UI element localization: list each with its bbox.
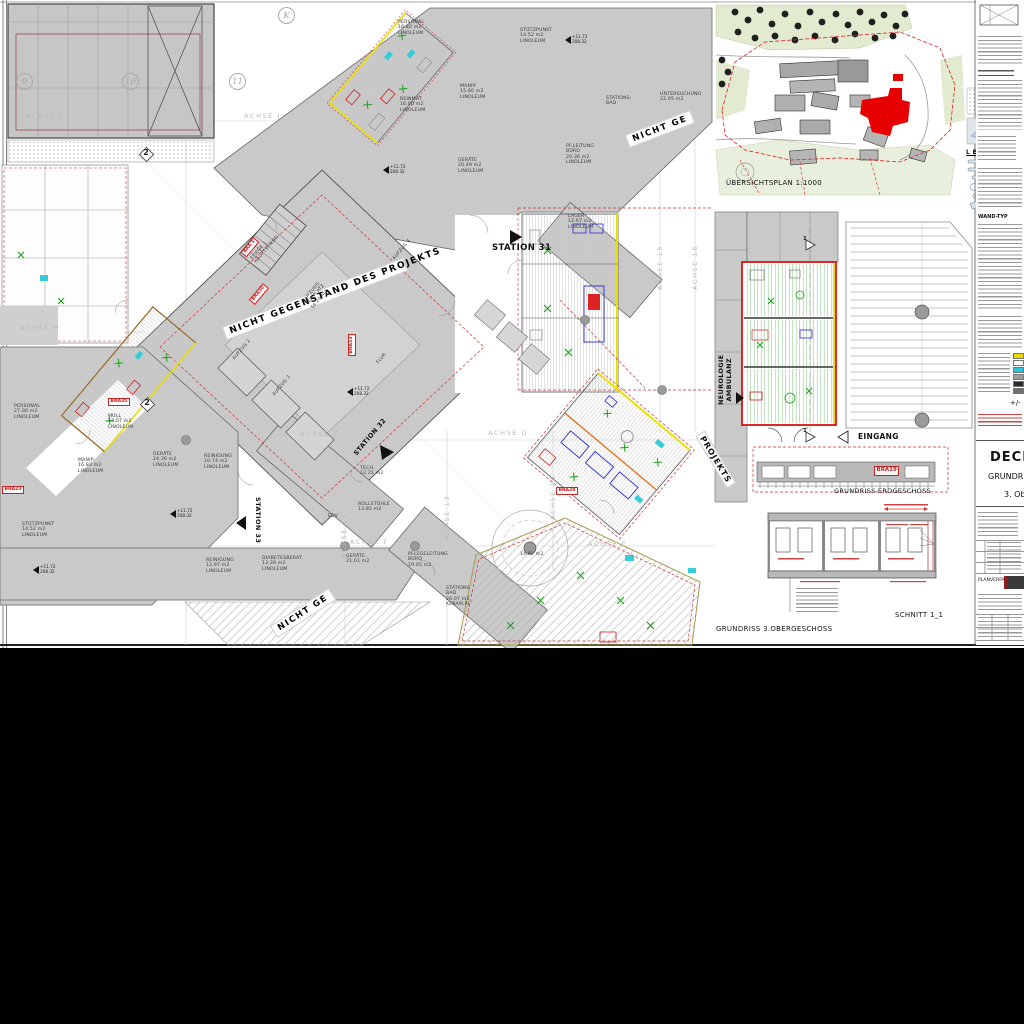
- section-marker-number: 1: [803, 236, 807, 242]
- wall-type-lines: [978, 224, 1022, 310]
- elevation-marker: +11.72 208.32: [347, 386, 370, 396]
- site-plan-caption: ÜBERSICHTSPLAN 1:1000: [726, 179, 822, 187]
- room-label: STATIONS- BAD: [606, 96, 632, 107]
- section-drawing: [768, 504, 936, 612]
- section-marker-number: 1: [803, 428, 807, 434]
- room-label: STATIONS BAD 26.07 m2 KERAM.PL: [446, 586, 470, 607]
- divider: [976, 440, 1024, 441]
- room-label: ROLLSTÜHLE 13.85 m2: [358, 502, 390, 513]
- sheet-title-fragment: GRUNDRIS: [988, 472, 1024, 481]
- room-label: REINIGUNG 10.74 m2 LINOLEUM: [204, 454, 232, 470]
- room-label: PERSONAL 27.06 m2 LINOLEUM: [14, 404, 40, 420]
- project-info-lines: [978, 512, 1018, 536]
- notes-lines: [978, 70, 1014, 76]
- legend-swatch: [1013, 367, 1024, 373]
- section-caption: SCHNITT 1_1: [895, 611, 943, 619]
- entrance-label: EINGANG: [858, 432, 899, 441]
- legend-lines: [978, 353, 1010, 393]
- department-label: NEUROLOGIE AMBULANZ: [718, 338, 734, 422]
- divider: [976, 506, 1024, 507]
- legend-swatch: [1013, 353, 1024, 359]
- grid-bubble-9: 9: [16, 73, 33, 90]
- plan-geometry: [0, 0, 1024, 648]
- plusminus-symbol: +/-: [1010, 399, 1021, 407]
- room-label: UNTERSUCHUNG 22.05 m2: [660, 92, 701, 103]
- titleblock-diagram: [976, 0, 1024, 30]
- grid-bubble-k: K: [278, 7, 295, 24]
- bra-tag: BRA35: [108, 398, 130, 406]
- legend-swatch: [1013, 381, 1024, 387]
- axis-g-label: ACHSE G: [300, 430, 340, 438]
- axis-j-label: ACHSE J: [244, 112, 281, 120]
- notes-lines: [978, 316, 1022, 348]
- canvas-black-area: [0, 648, 1024, 1024]
- grid-bubble-11: 11: [229, 73, 246, 90]
- elevation-marker: +11.72 208.32: [33, 564, 56, 574]
- notes-lines: [978, 136, 1016, 162]
- notes-lines: [978, 168, 1022, 210]
- renovation-column: [518, 208, 712, 392]
- legend-swatch: [1013, 374, 1024, 380]
- axis-14-label: ACHSE 14: [549, 475, 557, 520]
- station-33-label: STATION 33: [254, 497, 262, 543]
- sheet-title-fragment: DECKE: [990, 450, 1024, 465]
- notes-lines: [978, 36, 1022, 64]
- planner-lines: [978, 594, 1022, 610]
- bra-tag: BRA23: [2, 486, 24, 494]
- room-label: GERÄTE 21.61 m2: [346, 554, 370, 565]
- detail-plan-caption: GRUNDRISS ERDGESCHOSS: [834, 487, 931, 495]
- revision-lines: [987, 542, 1021, 572]
- room-label: GERÄTE 24.36 m2 LINOLEUM: [153, 452, 178, 468]
- room-label: REINIGUNG 12.97 m2 LINOLEUM: [206, 558, 234, 574]
- bra-tag: BRA13: [348, 334, 356, 356]
- station-31-label: STATION 31: [492, 243, 551, 253]
- renovation-wedge: [458, 518, 700, 645]
- title-block: WAND-TYP +/- DECKE GRUNDRIS 3. Ob PLANVE…: [976, 0, 1024, 645]
- red-note-lines: [978, 414, 1022, 428]
- axis-j-label: ACHSE J: [26, 112, 63, 120]
- room-label: GERÄTE 20.49 m2 LINOLEUM: [458, 158, 483, 174]
- grid-diamond-2: 2: [140, 397, 154, 411]
- axis-f-label: ACHSE F: [350, 538, 389, 546]
- axis-13-label: ACHSE 13: [443, 495, 451, 540]
- floor3-plan-caption: GRUNDRISS 3.OBERGESCHOSS: [716, 625, 832, 633]
- room-label: PERSONAL 16.82 m2 LINOLEUM: [398, 20, 424, 36]
- room-label: DIABETESBERAT. 13.39 m2 LINOLEUM: [262, 556, 303, 572]
- section-annotation-lines: [796, 588, 838, 614]
- wall-type-heading: WAND-TYP: [978, 214, 1008, 220]
- elevation-marker: +11.72 208.32: [383, 164, 406, 174]
- room-label: PFLEGELEITUNG BÜRO 19.05 m2: [408, 552, 448, 568]
- room-label: STÜTZPUNKT 14.52 m2 LINOLEUM: [520, 28, 552, 44]
- axis-e-label: ACHSE E: [588, 540, 627, 548]
- axis-g-label: ACHSE G: [488, 429, 528, 437]
- axis-h-label: ACHSE H: [20, 324, 60, 332]
- grid-bubble-10: 10: [122, 73, 139, 90]
- room-label: PF.LEITUNG BÜRO 20.36 m2 LINOLEUM: [566, 144, 594, 165]
- bra-tag: BRA19: [874, 466, 899, 476]
- room-label: MANIP. 15.66 m2 LINOLEUM: [460, 84, 485, 100]
- bra-tag: BRA28: [556, 487, 578, 495]
- notes-lines: [978, 80, 1022, 130]
- room-label: MANIP 16.83 m2 LINOLEUM: [78, 458, 103, 474]
- room-label: REINMAT. 16.00 m2 LINOLEUM: [400, 97, 425, 113]
- elevation-marker: +11.72 208.32: [565, 34, 588, 44]
- room-label: 14.82 m2: [520, 552, 544, 557]
- hall-structure: [8, 4, 214, 162]
- detail-plan: [715, 212, 972, 502]
- elevation-marker: +11.72 208.32: [170, 508, 193, 518]
- left-rooms: [0, 165, 128, 345]
- axis-16-label: ACHSE 16: [691, 245, 699, 290]
- sheet-title-fragment: 3. Ob: [1004, 490, 1024, 499]
- legend-swatch: [1013, 360, 1024, 366]
- axis-12-label: ACHSE 12: [340, 513, 348, 558]
- room-label: EDV: [328, 514, 338, 519]
- room-label: MÜLL 13.07 m2 LINOLEUM: [108, 414, 133, 430]
- legend-swatch: [1013, 388, 1024, 394]
- room-label: LAGER 12.67 m2 LINOLEUM: [568, 214, 593, 230]
- axis-15-label: ACHSE 15: [656, 245, 664, 290]
- room-label: TECH. 12.21 m2: [360, 466, 384, 477]
- planner-logo: [1004, 576, 1024, 589]
- drawing-sheet: NICHT GEGENSTAND DES PROJEKTS NICHT GE N…: [0, 0, 1024, 648]
- grid-diamond-2: 2: [139, 147, 153, 161]
- room-label: STÜTZPUNKT 14.52 m2 LINOLEUM: [22, 522, 54, 538]
- bottom-table-lines: [978, 617, 1022, 637]
